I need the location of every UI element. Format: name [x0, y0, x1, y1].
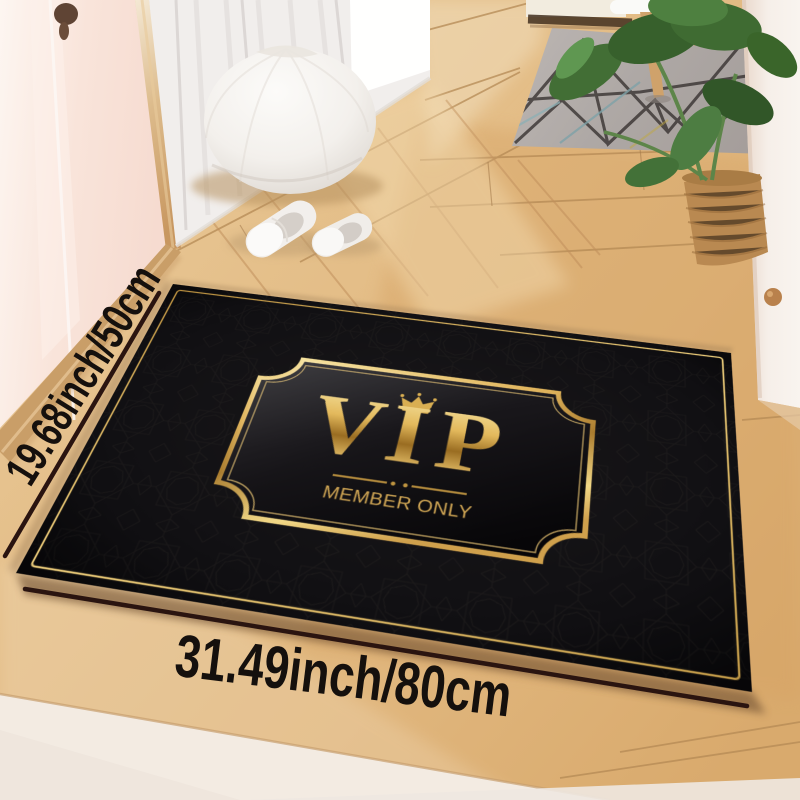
svg-text:31.49inch/80cm: 31.49inch/80cm — [172, 622, 516, 730]
svg-text:19.68inch/50cm: 19.68inch/50cm — [0, 256, 170, 494]
